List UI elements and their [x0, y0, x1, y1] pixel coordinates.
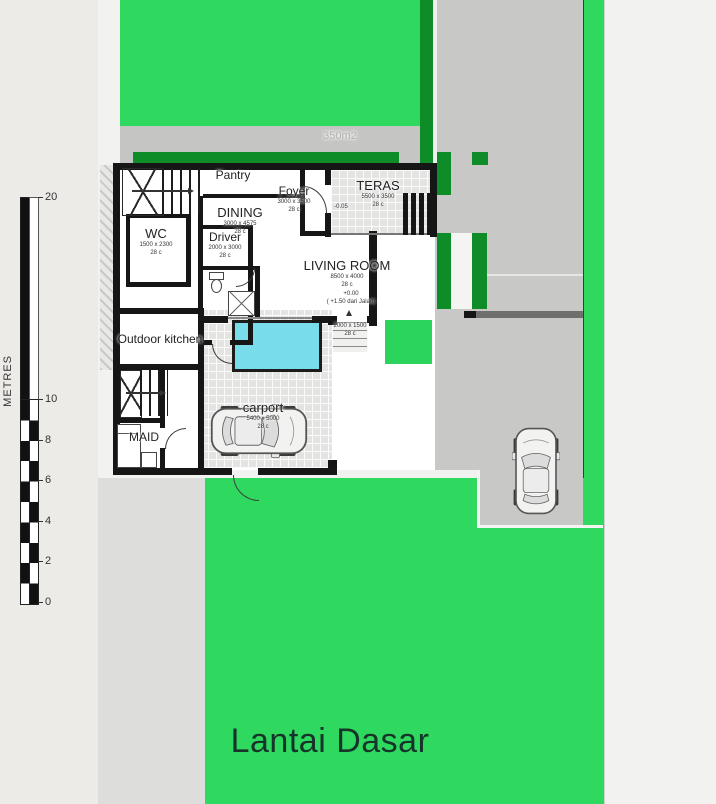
scale-label-2: 2: [45, 555, 51, 567]
site-area-label: 350m2: [323, 130, 357, 144]
gate-bar: [476, 311, 583, 318]
service-stair-direction-line: [126, 392, 162, 394]
dining-dims: 3000 x 4575: [217, 221, 263, 229]
plan-title: Lantai Dasar: [231, 722, 430, 761]
scale-label-10: 10: [45, 393, 57, 405]
teras-edge-line: [331, 233, 431, 235]
garden-steps-arrow: [346, 310, 352, 316]
walkway-planter-left: [437, 233, 451, 309]
wall-wc-west: [126, 214, 130, 287]
room-label-outdoor-kitchen: Outdoor kitchen: [118, 332, 203, 347]
walkway-path: [451, 233, 472, 309]
garden-steps-dims: 2000 x 1500: [333, 323, 366, 331]
foyer-name: Foyer: [277, 184, 310, 199]
living-name: LIVING ROOM: [304, 258, 391, 274]
wall-kitchen-north: [113, 308, 203, 314]
wc-dims: 1500 x 2300: [139, 242, 172, 250]
planter-stub-b: [472, 152, 488, 165]
wall-driver-south-b: [230, 340, 253, 345]
foyer-code: 28 c: [277, 207, 310, 215]
toilet-bowl: [211, 279, 222, 293]
carport-name: carport: [243, 400, 283, 416]
scale-label-0: 0: [45, 596, 51, 608]
teras-level-label: -0.05: [334, 204, 348, 212]
planter-stub-a: [437, 152, 451, 195]
teras-name: TERAS: [356, 178, 399, 194]
shower-tray: [228, 291, 255, 316]
scale-label-4: 4: [45, 515, 51, 527]
wc-name: WC: [139, 226, 172, 242]
column-post-b: [328, 460, 337, 469]
scale-tick: [38, 561, 43, 562]
scale-tick: [38, 440, 43, 441]
foyer-dims: 3000 x 3500: [277, 199, 310, 207]
room-label-dining: DINING 3000 x 4575 28 c: [217, 205, 263, 237]
sliding-door-line: [228, 317, 312, 319]
scale-tick: [38, 480, 43, 481]
living-dims: 8500 x 4000: [304, 274, 391, 282]
garden-steps-code: 28 c: [333, 331, 366, 339]
outdoor-kitchen-name: Outdoor kitchen: [118, 332, 203, 347]
front-lawn: [120, 0, 420, 126]
wall-driver-east: [248, 225, 253, 344]
scale-tick: [38, 521, 43, 522]
teras-step-2: [411, 193, 416, 235]
planter-strip-vertical: [420, 0, 433, 165]
main-stair-direction-line: [132, 190, 190, 192]
wall-south-a: [113, 468, 232, 475]
room-label-teras: TERAS 5500 x 3500 28 c: [356, 178, 399, 210]
driver-code: 28 c: [208, 253, 241, 261]
wall-corridor-east-b: [160, 448, 165, 468]
teras-level: -0.05: [334, 204, 348, 212]
room-label-pantry: Pantry: [216, 168, 251, 183]
scale-label-20: 20: [45, 191, 57, 203]
wall-foyer-east-a: [325, 163, 331, 185]
scale-bar-upper-right: [29, 197, 39, 401]
garden-steps-label: 2000 x 1500 28 c: [333, 323, 366, 339]
maid-name: MAID: [129, 430, 159, 445]
teras-step-3: [419, 193, 424, 235]
wall-living-south-a: [198, 316, 228, 323]
floor-plan-canvas: 350m2: [0, 0, 716, 804]
room-label-maid: MAID: [129, 430, 159, 445]
driver-dims: 2000 x 3000: [208, 245, 241, 253]
service-stair-landing: [120, 370, 142, 418]
swimming-pool: [232, 320, 322, 372]
service-stair-direction-arrow: [160, 390, 166, 396]
living-level-label: +0.00 ( +1.50 dari Jalan): [327, 291, 376, 307]
wall-wc-east: [186, 214, 191, 286]
living-level-note: ( +1.50 dari Jalan): [327, 299, 376, 307]
living-code: 28 c: [304, 282, 391, 290]
bottom-left-paving: [98, 478, 205, 804]
dining-code: 28 c: [217, 229, 263, 237]
garden-planter-square: [385, 320, 432, 364]
driveway-car-top-view: [512, 426, 560, 516]
teras-step-1: [403, 193, 408, 235]
carport-code: 28 c: [243, 424, 283, 432]
room-label-living: LIVING ROOM 8500 x 4000 28 c: [304, 258, 391, 290]
main-stair-winder: [122, 168, 164, 216]
wall-bath-east: [255, 266, 260, 318]
teras-step-4: [427, 193, 432, 235]
site-area-text: 350m2: [323, 130, 357, 142]
scale-label-8: 8: [45, 434, 51, 446]
scale-tick: [38, 197, 43, 198]
scale-tick: [38, 399, 43, 400]
wall-wc-south: [126, 282, 191, 287]
walkway-planter-right: [472, 233, 487, 309]
parking-edge-bottom: [477, 525, 603, 528]
gate-post: [464, 311, 476, 318]
room-label-carport: carport 5400 x 5000 28 c: [243, 400, 283, 432]
maid-side-table: [141, 452, 157, 468]
teras-dims: 5500 x 3500: [356, 194, 399, 202]
wc-code: 28 c: [139, 250, 172, 258]
scale-label-6: 6: [45, 474, 51, 486]
right-boundary-line: [604, 0, 605, 804]
room-label-foyer: Foyer 3000 x 3500 28 c: [277, 184, 310, 215]
teras-code: 28 c: [356, 202, 399, 210]
main-stair-direction-arrow: [188, 188, 194, 194]
wall-living-south-c: [367, 316, 377, 323]
wall-maid-north: [113, 418, 163, 423]
scale-tick: [38, 602, 43, 603]
scale-bar-lower-right: [29, 399, 39, 605]
room-label-wc: WC 1500 x 2300 28 c: [139, 226, 172, 258]
scale-unit-label: METRES: [2, 355, 14, 407]
wall-south-b: [258, 468, 337, 475]
dining-name: DINING: [217, 205, 263, 221]
pantry-name: Pantry: [216, 168, 251, 183]
carport-dims: 5400 x 5000: [243, 416, 283, 424]
living-level: +0.00: [327, 291, 376, 299]
